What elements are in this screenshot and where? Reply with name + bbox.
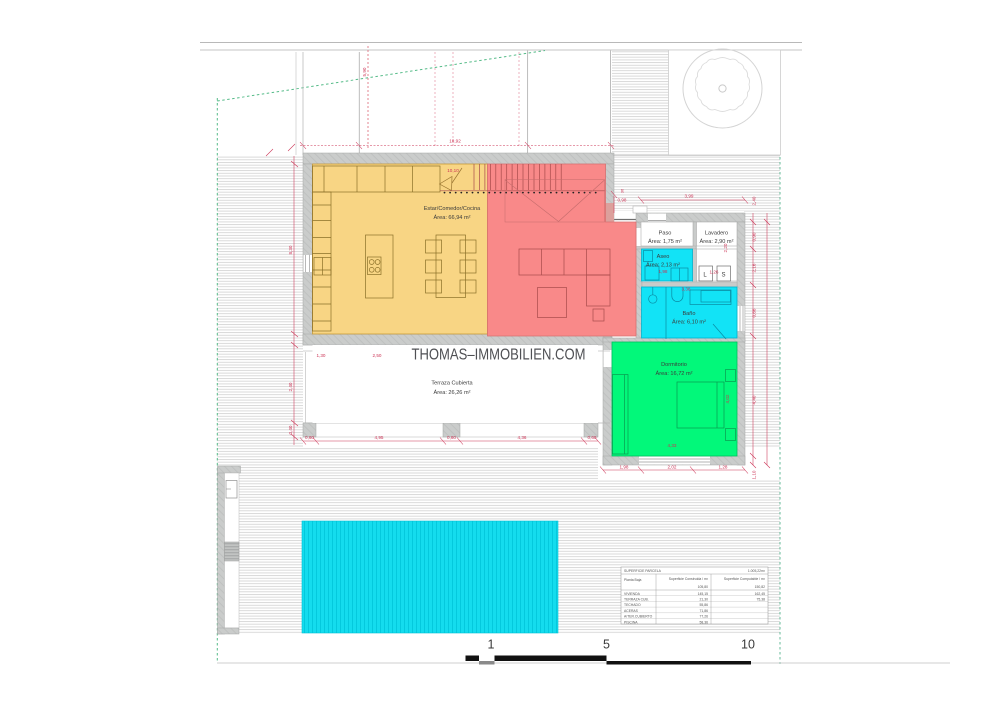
svg-text:2,40: 2,40 [288,382,293,391]
svg-text:2,02: 2,02 [668,465,677,470]
svg-text:0,66: 0,66 [752,308,757,317]
svg-text:162,45: 162,45 [755,592,765,596]
svg-text:5,90: 5,90 [362,67,367,76]
svg-text:5: 5 [603,638,610,652]
svg-text:0,98: 0,98 [618,198,627,203]
svg-text:21,30: 21,30 [700,598,709,602]
svg-text:Área: 2,90 m²: Área: 2,90 m² [700,238,734,245]
svg-text:1,98: 1,98 [659,269,668,274]
svg-text:2,40: 2,40 [752,196,757,205]
svg-text:150,82: 150,82 [755,585,765,589]
svg-text:VIVIENDA: VIVIENDA [624,592,641,596]
svg-text:Área: 1,75 m²: Área: 1,75 m² [648,238,682,245]
svg-text:TERRAZA CUB.: TERRAZA CUB. [624,598,649,602]
svg-text:10,92: 10,92 [449,139,461,144]
svg-text:105,80: 105,80 [698,585,708,589]
svg-text:1,10: 1,10 [752,470,757,479]
svg-text:4,36: 4,36 [518,435,527,440]
svg-text:0,90: 0,90 [752,232,757,241]
svg-text:10,10: 10,10 [447,168,459,173]
svg-text:Dormitorio: Dormitorio [661,362,687,368]
svg-text:1,28: 1,28 [719,465,728,470]
svg-text:Aseo: Aseo [657,254,670,260]
svg-text:Estar/Comedor/Cocina: Estar/Comedor/Cocina [424,206,481,212]
svg-text:10: 10 [741,638,755,652]
svg-text:1: 1 [488,638,495,652]
svg-text:0,60: 0,60 [447,435,456,440]
svg-text:Terraza Cubierta: Terraza Cubierta [431,381,473,387]
svg-text:3,38: 3,38 [682,287,691,292]
svg-text:4,33: 4,33 [668,443,677,448]
svg-text:145,15: 145,15 [698,592,708,596]
svg-text:Planta Baja: Planta Baja [624,578,641,582]
svg-text:3,99: 3,99 [685,194,694,199]
svg-text:S: S [721,273,725,279]
svg-text:0,60: 0,60 [588,435,597,440]
svg-text:TECHADO: TECHADO [624,603,641,607]
svg-text:8,30: 8,30 [288,245,293,254]
svg-text:77,26: 77,26 [700,615,709,619]
svg-text:75,38: 75,38 [757,598,766,602]
svg-text:1.005,22m²: 1.005,22m² [748,569,766,573]
svg-text:2,16: 2,16 [752,263,757,272]
svg-text:36: 36 [620,188,625,193]
svg-text:4,40: 4,40 [752,395,757,404]
svg-text:Área: 2,13 m²: Área: 2,13 m² [646,262,680,269]
svg-text:Área: 6,10 m²: Área: 6,10 m² [672,319,706,326]
svg-text:71,86: 71,86 [700,609,709,613]
svg-text:PISCINA: PISCINA [624,620,638,624]
svg-text:A/TER.CUBIERTO: A/TER.CUBIERTO [624,615,653,619]
svg-text:4,95: 4,95 [375,435,384,440]
svg-text:Área: 16,72 m²: Área: 16,72 m² [656,370,693,377]
svg-text:SUPERFICIE PARCELA: SUPERFICIE PARCELA [624,569,662,573]
svg-text:1,30: 1,30 [317,353,326,358]
svg-text:ACERAS: ACERAS [624,609,639,613]
svg-text:0,40: 0,40 [288,425,293,434]
svg-text:0,60: 0,60 [305,435,314,440]
svg-text:Superficie Computable / m²: Superficie Computable / m² [724,577,766,581]
svg-text:Área: 66,94 m²: Área: 66,94 m² [434,214,471,221]
svg-text:Área: 26,26 m²: Área: 26,26 m² [434,389,471,396]
svg-text:58,36: 58,36 [700,620,709,624]
svg-text:4,02: 4,02 [725,394,730,403]
svg-text:Superficie Construida / m²: Superficie Construida / m² [669,577,709,581]
svg-text:THOMAS–IMMOBILIEN.COM: THOMAS–IMMOBILIEN.COM [412,347,586,364]
svg-text:Lavadero: Lavadero [705,231,728,237]
svg-text:2,50: 2,50 [373,353,382,358]
svg-text:Paso: Paso [659,231,672,237]
svg-text:Baño: Baño [682,311,695,317]
svg-text:1,98: 1,98 [620,465,629,470]
svg-text:1,26: 1,26 [710,270,719,275]
svg-text:55,86: 55,86 [700,603,709,607]
